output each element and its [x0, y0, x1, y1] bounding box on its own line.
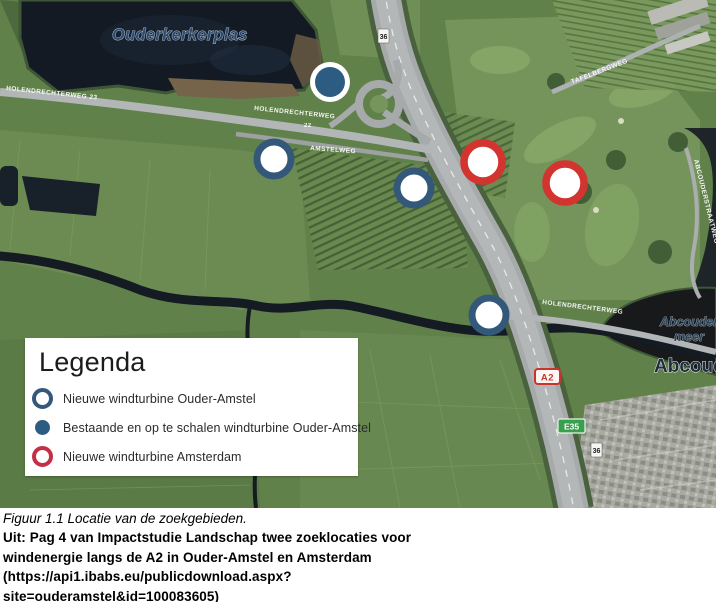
map-marker-blue-ring [257, 142, 291, 176]
legend-title: Legenda [39, 347, 358, 377]
figure-page: HOLENDRECHTERWEG 23 HOLENDRECHTERWEG AMS… [0, 0, 716, 602]
meer-label-line1: Abcouder [659, 315, 716, 329]
red-ring-marker-icon [32, 446, 53, 467]
a2-road-shield: A2 [535, 369, 560, 384]
meer-label-line2: meer [674, 330, 705, 344]
legend-item-existing-ouder-amstel: Bestaande en op te schalen windturbine O… [25, 413, 358, 442]
map-marker-red-ring [546, 164, 584, 202]
e35-label: E35 [564, 422, 579, 432]
caption-source-line: Uit: Pag 4 van Impactstudie Landschap tw… [3, 528, 716, 548]
map-legend: Legenda Nieuwe windturbine Ouder-Amstel … [25, 338, 358, 476]
map-marker-blue-ring [472, 298, 506, 332]
a2-label: A2 [541, 373, 554, 384]
caption-source-line: site=ouderamstel&id=100083605) [3, 587, 716, 602]
figure-caption: Figuur 1.1 Locatie van de zoekgebieden. … [0, 508, 716, 602]
street-label: 22 [304, 123, 312, 129]
blue-filled-marker-icon [35, 420, 50, 435]
exit-number: 36 [593, 448, 601, 455]
caption-source-line: windenergie langs de A2 in Ouder-Amstel … [3, 548, 716, 568]
blue-ring-marker-icon [32, 388, 53, 409]
map-marker-blue-filled [315, 67, 345, 97]
map-marker-red-ring [464, 143, 502, 181]
exit-36-shield: 36 [591, 443, 602, 457]
town-label: Abcoude [654, 356, 716, 377]
legend-item-label: Nieuwe windturbine Ouder-Amstel [63, 392, 256, 406]
lake-label: Ouderkerkerplas [112, 26, 248, 44]
legend-item-label: Nieuwe windturbine Amsterdam [63, 450, 242, 464]
exit-36-shield: 36 [378, 29, 389, 43]
legend-item-new-amsterdam: Nieuwe windturbine Amsterdam [25, 442, 358, 471]
caption-source-line: (https://api1.ibabs.eu/publicdownload.as… [3, 567, 716, 587]
e35-road-shield: E35 [558, 419, 585, 433]
caption-title: Figuur 1.1 Locatie van de zoekgebieden. [3, 510, 716, 528]
legend-item-new-ouder-amstel: Nieuwe windturbine Ouder-Amstel [25, 384, 358, 413]
exit-number: 36 [380, 34, 388, 41]
map-marker-blue-ring [397, 171, 431, 205]
legend-item-label: Bestaande en op te schalen windturbine O… [63, 421, 371, 435]
